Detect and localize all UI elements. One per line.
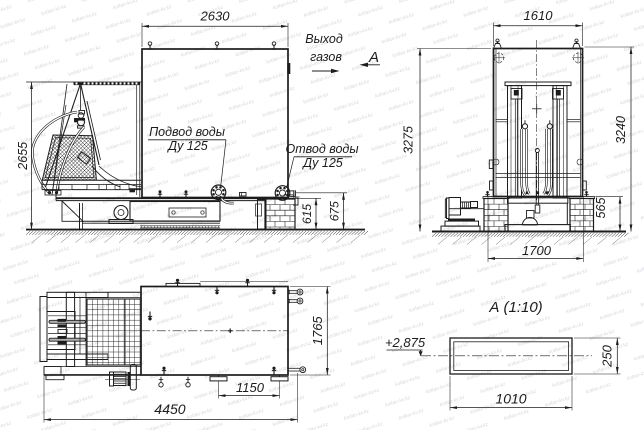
svg-text:+2,875: +2,875 xyxy=(385,335,426,350)
svg-text:565: 565 xyxy=(594,198,608,219)
svg-text:Ду 125: Ду 125 xyxy=(166,139,208,153)
svg-text:2630: 2630 xyxy=(200,9,231,24)
svg-text:Отвод воды: Отвод воды xyxy=(285,142,358,156)
svg-text:3240: 3240 xyxy=(614,116,628,144)
svg-text:1700: 1700 xyxy=(522,243,552,258)
svg-text:Подвод воды: Подвод воды xyxy=(149,125,225,139)
svg-text:А: А xyxy=(368,49,379,66)
svg-text:4450: 4450 xyxy=(154,401,185,417)
svg-text:газов: газов xyxy=(310,50,342,64)
svg-text:1765: 1765 xyxy=(310,316,325,346)
svg-text:А (1:10): А (1:10) xyxy=(488,299,542,316)
svg-text:Ду 125: Ду 125 xyxy=(301,156,343,170)
svg-text:1610: 1610 xyxy=(524,8,554,23)
svg-text:1010: 1010 xyxy=(495,391,526,407)
svg-text:675: 675 xyxy=(328,201,342,221)
svg-text:250: 250 xyxy=(600,344,615,367)
svg-text:1150: 1150 xyxy=(236,380,265,395)
svg-text:Выход: Выход xyxy=(305,32,343,46)
svg-text:2655: 2655 xyxy=(16,142,30,171)
svg-text:3275: 3275 xyxy=(402,126,416,154)
svg-text:615: 615 xyxy=(300,204,314,224)
